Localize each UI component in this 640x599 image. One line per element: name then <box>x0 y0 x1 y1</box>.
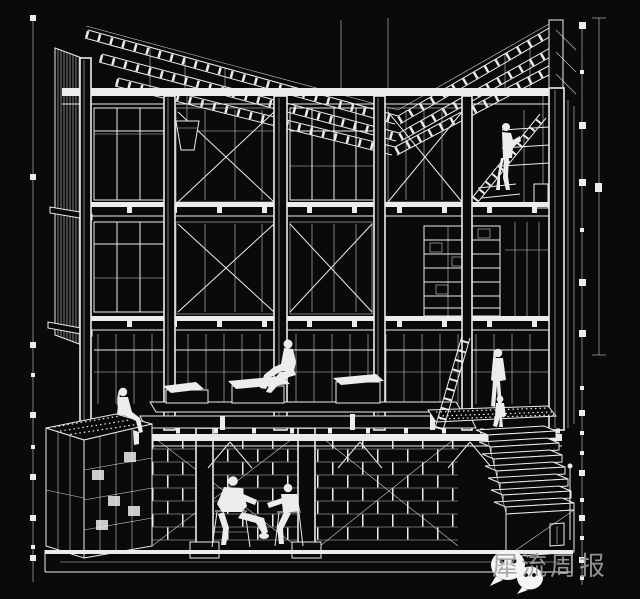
cross-brace <box>290 224 372 312</box>
window-grid-story-2 <box>94 222 549 316</box>
window-grid-story-3 <box>94 334 554 404</box>
dimension-line <box>592 18 606 355</box>
figure-worker-on-scaffold <box>496 123 521 190</box>
watermark: 犀流周报 <box>486 546 608 583</box>
figure-seated-man-left <box>212 476 269 547</box>
cross-brace <box>178 224 274 312</box>
watermark-text: 犀流周报 <box>492 546 608 583</box>
staircase <box>476 426 574 557</box>
building-section-drawing <box>0 0 640 599</box>
registration-marks-right <box>579 22 586 585</box>
registration-marks-left <box>30 15 36 582</box>
drawing-canvas: 犀流周报 <box>0 0 640 599</box>
